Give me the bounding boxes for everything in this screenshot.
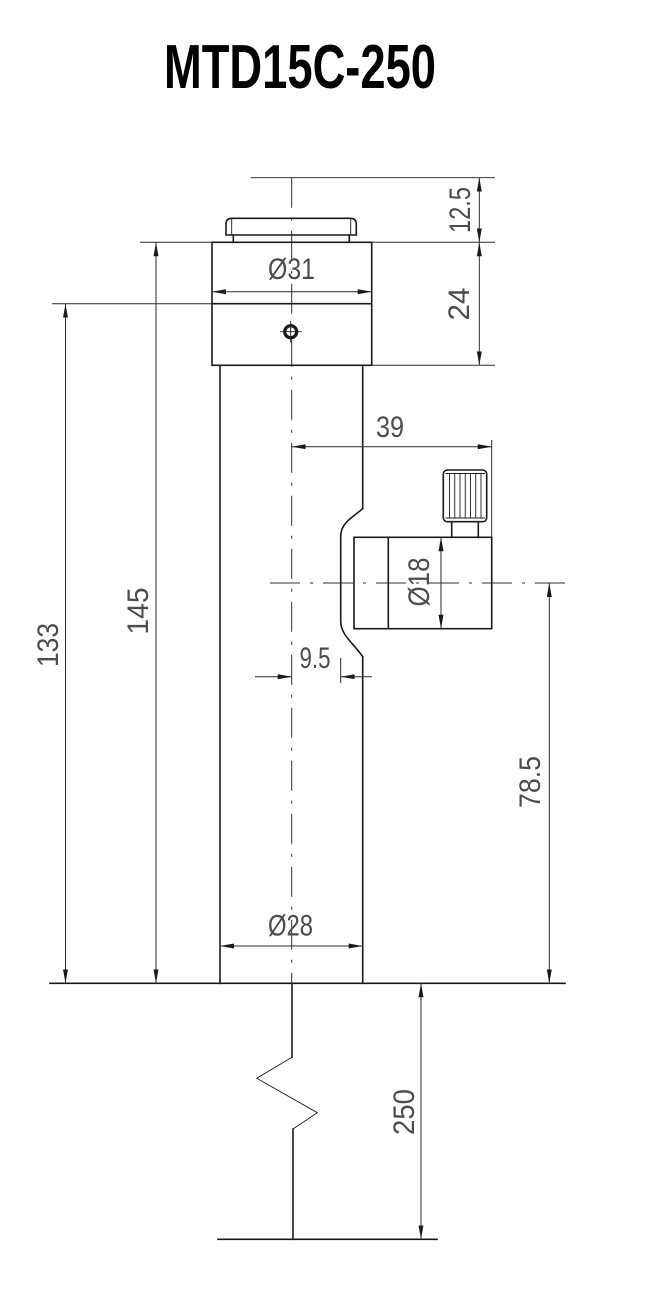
stem-break: [257, 1057, 318, 1129]
dim-label-shoulder-to-base: 133: [32, 623, 65, 667]
dim-label-port-reach: 39: [376, 411, 404, 444]
dim-label-port-diameter: Ø18: [403, 558, 436, 607]
cap-top: [226, 218, 356, 235]
dim-tube-diameter: Ø28: [220, 910, 363, 947]
drawing-title: MTD15C-250: [164, 33, 436, 102]
knob-knurling: [446, 474, 486, 519]
dim-label-head-height: 24: [443, 288, 476, 321]
dim-label-head-top-to-base: 145: [122, 588, 155, 635]
dim-label-port-axis-to-base: 78.5: [514, 756, 547, 808]
dim-saddle-offset: 9.5: [255, 642, 372, 683]
dim-top-extension-height: 12.5: [444, 178, 479, 243]
dim-label-head-diameter: Ø31: [268, 253, 315, 286]
dim-head-top-to-base: 145: [122, 242, 212, 983]
dim-head-diameter: Ø31: [212, 253, 372, 292]
technical-drawing: MTD15C-250: [0, 0, 662, 1300]
dim-label-stem-length: 250: [388, 1089, 421, 1135]
dim-head-height: 24: [372, 242, 495, 365]
part-outline: [50, 178, 565, 1240]
dim-stem-length: 250: [388, 983, 421, 1239]
dim-label-tube-diameter: Ø28: [268, 910, 313, 943]
dim-port-axis-to-base: 78.5: [514, 583, 549, 983]
dim-shoulder-to-base: 133: [32, 304, 212, 984]
drawing-page: MTD15C-250: [0, 0, 662, 1300]
dim-port-diameter: Ø18: [403, 537, 441, 628]
dim-label-saddle-offset: 9.5: [300, 642, 331, 675]
dim-label-top-extension-height: 12.5: [444, 187, 477, 233]
